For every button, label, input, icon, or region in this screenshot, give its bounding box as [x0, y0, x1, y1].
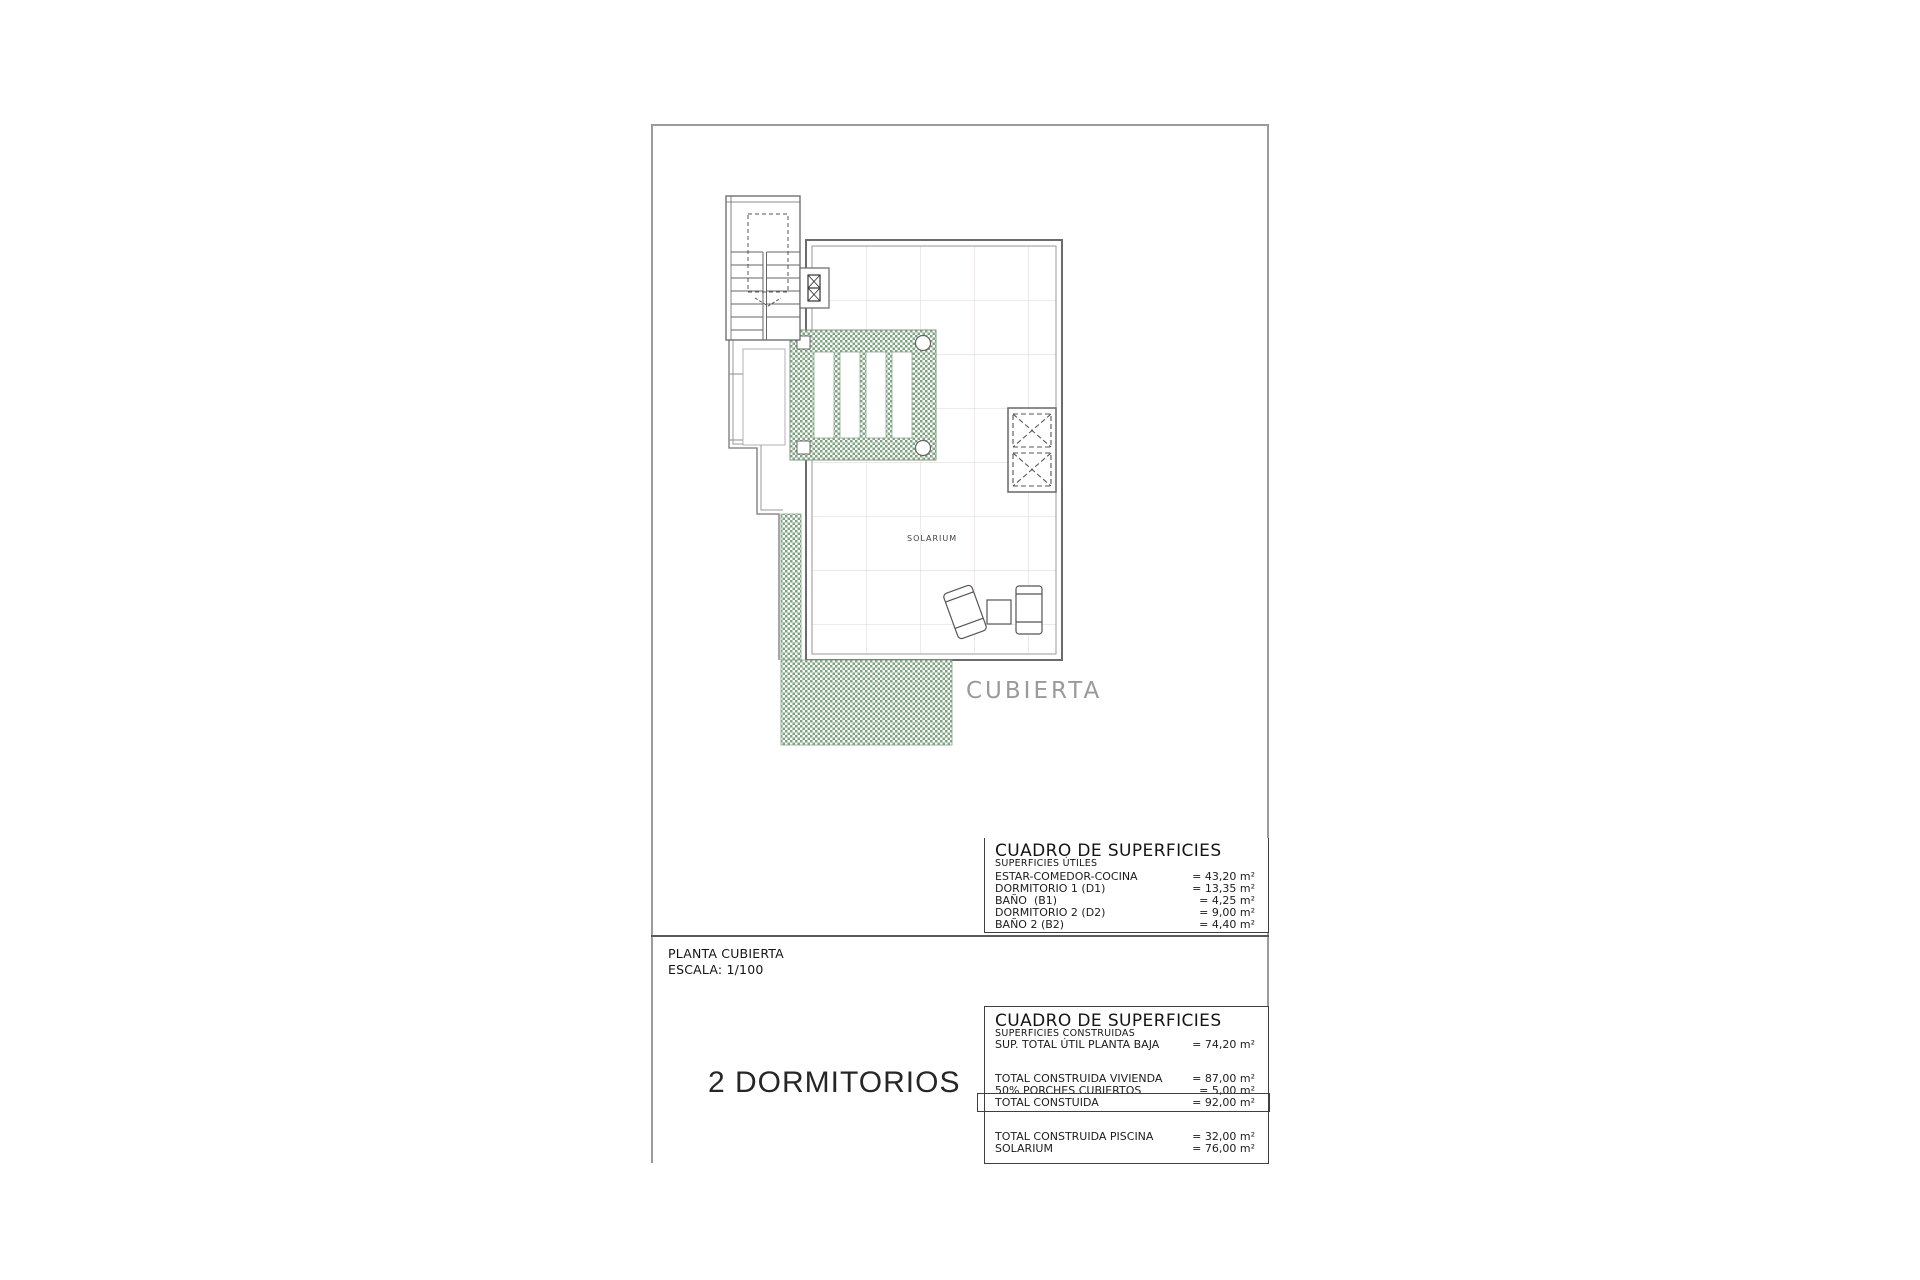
pergola: [790, 330, 936, 460]
variant-label: 2 DORMITORIOS: [708, 1066, 960, 1100]
roof-label: CUBIERTA: [966, 678, 1102, 704]
titleblock-separator-line: [651, 935, 1269, 937]
row-label: TOTAL CONSTUIDA: [995, 1097, 1099, 1109]
row-label: SOLARIUM: [995, 1143, 1053, 1155]
sheet-canvas: SOLARIUM CUBIERTA CUADRO DE SUPERFICIES …: [0, 0, 1920, 1280]
pergola-post-bottomleft: [797, 441, 810, 454]
skylights: [1008, 408, 1056, 492]
table-row-total: TOTAL CONSTUIDA= 92,00 m²: [985, 1097, 1268, 1109]
side-table: [987, 600, 1011, 624]
table-row: SUP. TOTAL ÚTIL PLANTA BAJA= 74,20 m²: [985, 1039, 1268, 1051]
row-value: = 4,40 m²: [1199, 919, 1255, 931]
green-roof-strip: [781, 514, 801, 660]
plan-scale: ESCALA: 1/100: [668, 962, 764, 978]
pergola-post-bottomright: [916, 441, 931, 456]
table-subtitle: SUPERFICIES ÚTILES: [995, 858, 1097, 869]
row-label: BAÑO 2 (B2): [995, 919, 1064, 931]
sun-lounger-right: [1016, 586, 1042, 634]
roof-plan-drawing: SOLARIUM CUBIERTA: [600, 110, 1320, 870]
staircase: [726, 196, 800, 340]
plan-title: PLANTA CUBIERTA: [668, 946, 784, 962]
row-value: = 74,20 m²: [1192, 1039, 1255, 1051]
row-value: = 76,00 m²: [1192, 1143, 1255, 1155]
row-label: SUP. TOTAL ÚTIL PLANTA BAJA: [995, 1039, 1159, 1051]
row-value: = 92,00 m²: [1192, 1097, 1255, 1109]
green-roof-block: [781, 660, 952, 745]
pergola-post-topright: [916, 336, 931, 351]
vent-shaft: [800, 268, 829, 308]
table-row: SOLARIUM= 76,00 m²: [985, 1143, 1268, 1155]
solarium-label: SOLARIUM: [907, 534, 957, 543]
parapet-walls: [729, 340, 785, 660]
surface-table-construidas: CUADRO DE SUPERFICIES SUPERFICIES CONSTR…: [984, 1006, 1269, 1164]
surface-table-utiles: CUADRO DE SUPERFICIES SUPERFICIES ÚTILES…: [984, 838, 1269, 933]
table-row: BAÑO 2 (B2)= 4,40 m²: [985, 919, 1268, 931]
